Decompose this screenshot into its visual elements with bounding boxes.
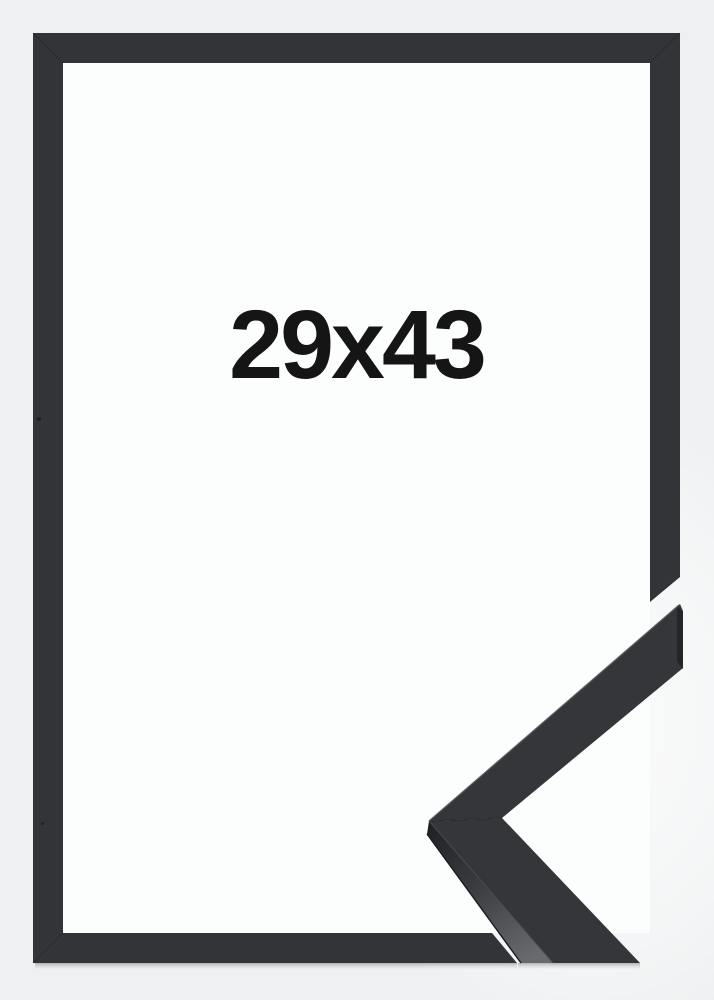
frame-bottom-shadow — [35, 963, 517, 969]
product-photo-frame: 29x43 — [0, 0, 714, 1000]
frame-opening-panel — [63, 63, 650, 933]
sample-end-face — [677, 606, 683, 669]
sample-bottom-shadow — [518, 963, 640, 969]
size-label: 29x43 — [33, 293, 680, 403]
frame-illustration — [0, 0, 714, 1000]
